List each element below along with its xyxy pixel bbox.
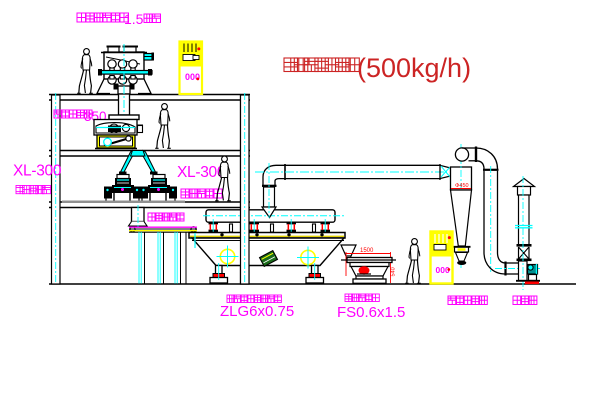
- svg-text:540: 540: [391, 267, 397, 276]
- svg-text:000: 000: [185, 72, 200, 82]
- svg-text:ZLG6x0.75: ZLG6x0.75: [220, 303, 294, 320]
- svg-text:1.5: 1.5: [124, 11, 144, 27]
- svg-text:XL-300: XL-300: [177, 164, 226, 181]
- svg-text:(500kg/h): (500kg/h): [357, 53, 471, 83]
- svg-text:FS0.6x1.5: FS0.6x1.5: [337, 304, 405, 321]
- svg-text:XL-300: XL-300: [13, 163, 62, 180]
